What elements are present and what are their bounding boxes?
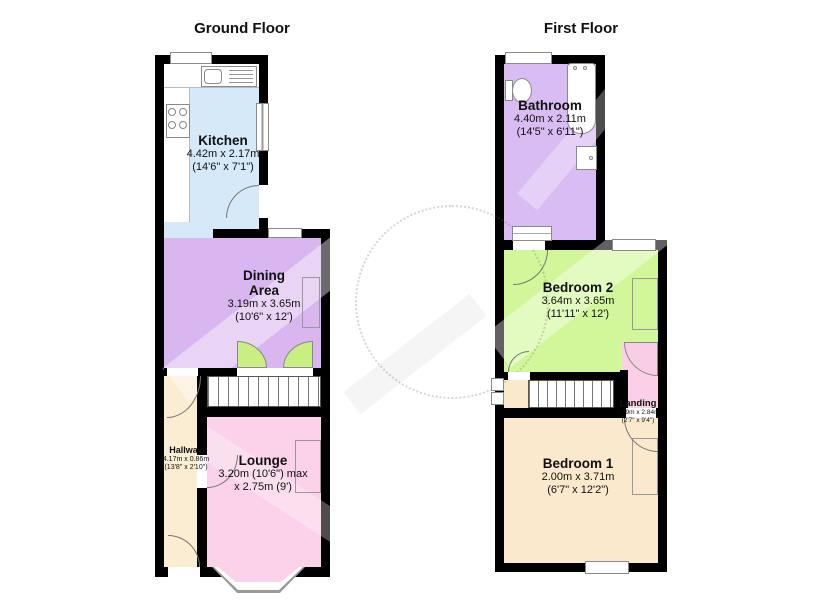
first-floor-stairs [528,380,614,408]
kitchen-dining-wall [213,229,268,238]
room-dim-imperial: (2'7" x 9'4") [610,417,666,424]
kitchen-door-opening [259,185,268,218]
room-dim-imperial: (11'11" x 12') [503,308,653,321]
hob-ring-icon [179,108,187,116]
front-door-opening [168,567,200,577]
room-dim-metric: 3.20m (10'6") max [192,468,334,481]
ground-floor-stairs [207,376,321,407]
basin-tap-icon [589,156,593,160]
bath-tap-icon [583,66,587,70]
watermark [343,294,486,415]
room-dim-metric: 4.42m x 2.17m [150,148,296,161]
bathroom-label: Bathroom 4.40m x 2.11m (14'5" x 6'11") [477,98,623,139]
bedroom2-window [612,239,656,251]
stair-approach [504,380,528,408]
bedroom2-label: Bedroom 2 3.64m x 3.65m (11'11" x 12') [503,280,653,321]
hob-ring-icon [168,121,176,129]
french-door-opening [237,368,313,376]
room-dim-metric: 3.64m x 3.65m [503,295,653,308]
room-name: Lounge [192,453,334,468]
room-name: Bedroom 2 [503,280,653,295]
room-dim-metric: 2.00m x 3.71m [503,471,653,484]
room-name: Dining Area [230,268,298,298]
first-floor-title: First Floor [481,20,681,37]
stairwell-window [491,378,504,391]
room-dim-metric: 3.19m x 3.65m [194,298,334,311]
room-name: Landing [610,399,666,409]
room-name: Bedroom 1 [503,456,653,471]
ground-floor-title: Ground Floor [142,20,342,37]
bedroom2-door-opening [508,372,530,380]
hob-ring-icon [179,121,187,129]
kitchen-top-window [170,52,212,64]
bedroom1-label: Bedroom 1 2.00m x 3.71m (6'7" x 12'2") [503,456,653,497]
room-name: Bathroom [477,98,623,113]
dining-area-label: Dining Area 3.19m x 3.65m (10'6" x 12') [194,268,334,325]
room-dim-imperial: (6'7" x 12'2") [503,484,653,497]
stairs-lounge-wall [207,407,330,417]
radiator-icon [512,226,552,241]
kitchen-label: Kitchen 4.42m x 2.17m (14'6" x 7'1") [150,133,296,174]
stairwell-window [491,392,504,405]
sink-bowl-icon [204,69,222,84]
room-dim-imperial: (10'6" x 12') [194,311,334,324]
hallway-door-opening [167,368,198,376]
drainer-icon [229,70,253,84]
room-dim-metric: 0.79m x 2.84m [610,409,666,416]
dining-window [268,228,302,238]
room-dim-imperial: (14'6" x 7'1") [150,161,296,174]
landing-label: Landing 0.79m x 2.84m (2'7" x 9'4") [610,399,666,424]
bath-tap-icon [573,66,577,70]
room-dim-imperial: (14'5" x 6'11") [477,126,623,139]
floorplan-canvas: Ground Floor Kitche [0,0,825,600]
basin-icon [576,146,597,170]
bathroom-door-opening [513,240,545,250]
bathroom-window [505,52,552,64]
room-dim-imperial: x 2.75m (9') [192,481,334,494]
bedroom1-window [585,561,629,574]
hob-ring-icon [168,108,176,116]
lounge-label: Lounge 3.20m (10'6") max x 2.75m (9') [192,453,334,494]
room-dim-metric: 4.40m x 2.11m [477,113,623,126]
room-name: Kitchen [150,133,296,148]
